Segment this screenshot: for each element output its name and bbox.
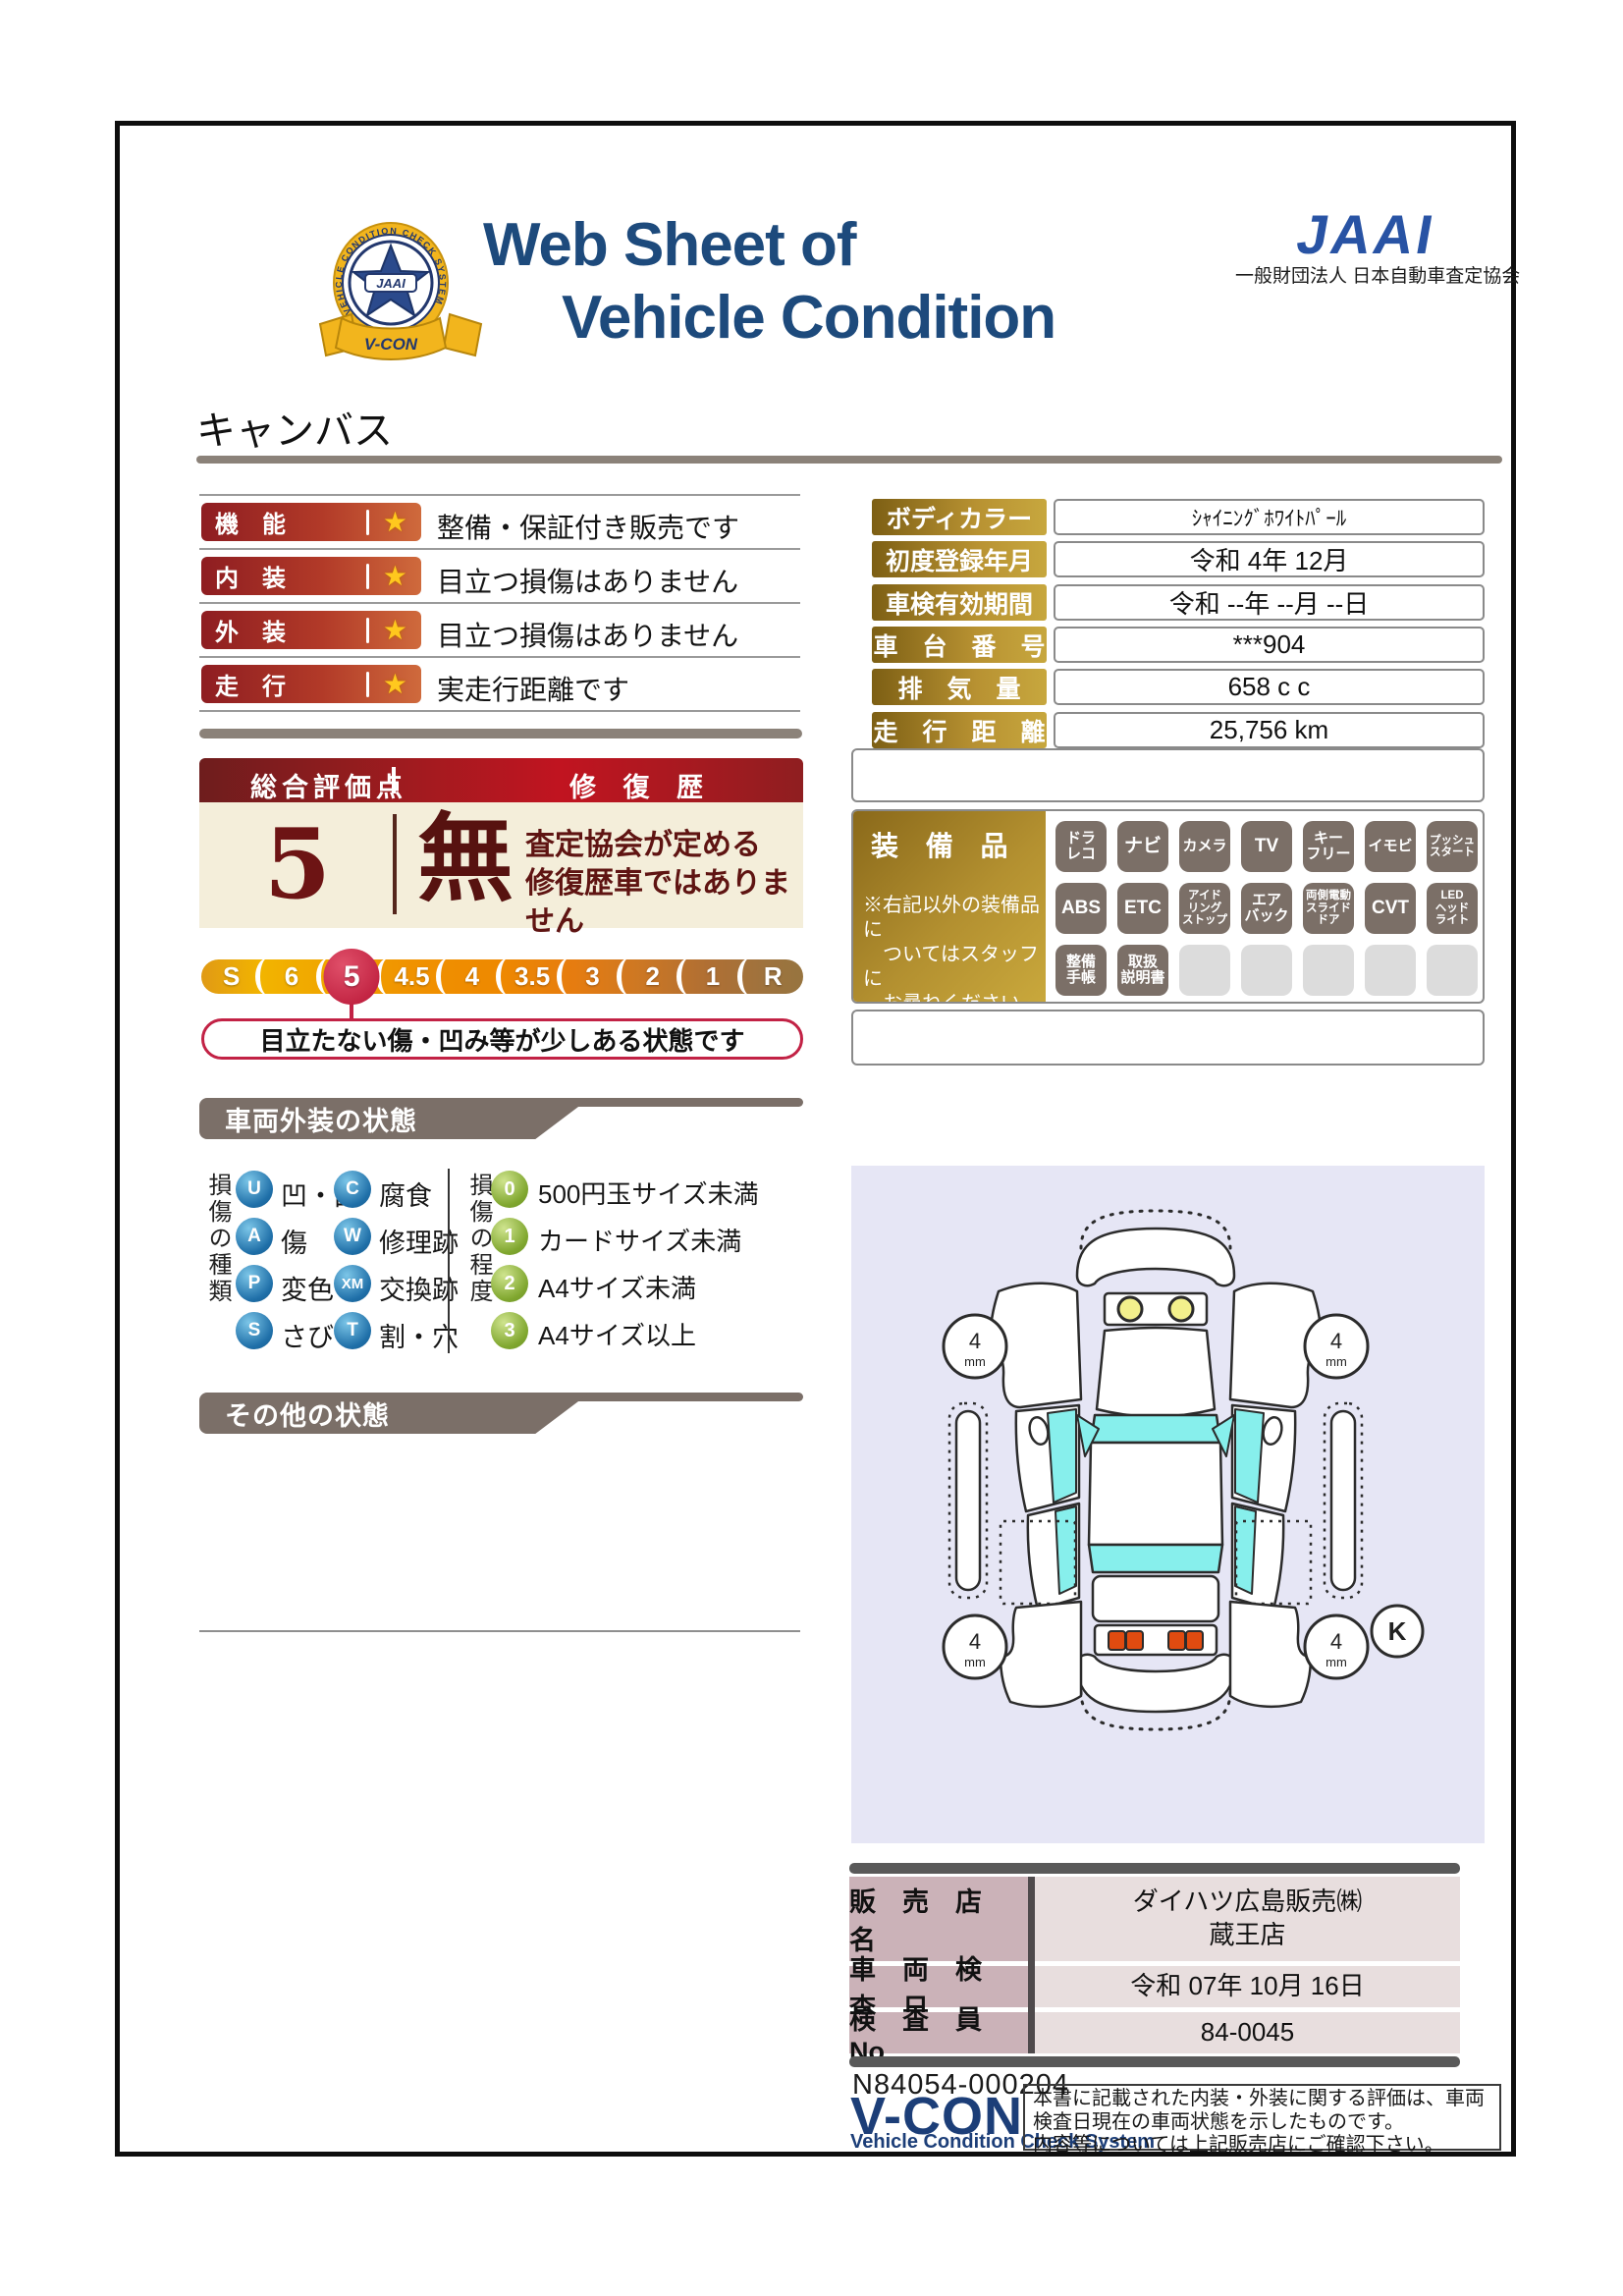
dealer-table-divider <box>1028 1877 1035 2053</box>
legend-divider <box>448 1169 450 1353</box>
level-label: A4サイズ以上 <box>538 1316 696 1352</box>
dealer-table-bottom-bar <box>849 2056 1460 2067</box>
badge-airbag: エア バック <box>1241 883 1292 934</box>
rating-comment: 目立つ損傷はありません <box>437 561 738 600</box>
badge-immobilizer: イモビ <box>1365 821 1416 872</box>
grade-seg-s: S <box>201 959 261 994</box>
other-section-banner: その他の状態 <box>199 1393 590 1434</box>
rating-label: 内 装 <box>215 559 362 593</box>
damage-code-xm: XM <box>334 1265 371 1302</box>
grade-seg-4-5: 4.5 <box>382 959 442 994</box>
dealer-table-top-bar <box>849 1863 1460 1874</box>
level-1: 1 <box>491 1218 528 1255</box>
jaai-org-name: 一般財団法人 日本自動車査定協会 <box>1235 261 1520 288</box>
pill-divider <box>366 618 369 643</box>
badge-empty <box>1179 945 1230 996</box>
rating-pill-function: 機 能 ★ <box>201 503 421 541</box>
star-icon: ★ <box>383 509 407 536</box>
selected-grade-circle: 5 <box>324 949 380 1005</box>
badge-keyfree: キー フリー <box>1303 821 1354 872</box>
rating-pill-exterior: 外 装 外 装 ★ <box>201 611 421 649</box>
rating-comment: 整備・保証付き販売です <box>437 507 739 546</box>
badge-pushstart: プッシュ スタート <box>1427 821 1478 872</box>
damage-label: 腐食 <box>379 1175 432 1213</box>
car-damage-diagram: 4 mm 4 mm 4 mm 4 mm K <box>851 1166 1485 1843</box>
grade-seg-4: 4 <box>442 959 502 994</box>
grade-seg-2: 2 <box>622 959 682 994</box>
rating-label: 外 装 <box>215 613 362 647</box>
badge-idling-stop: アイド リング ストップ <box>1179 883 1230 934</box>
level-label: A4サイズ未満 <box>538 1269 696 1305</box>
tire-depth-unit: mm <box>1325 1354 1347 1369</box>
dealer-name-value: ダイハツ広島販売㈱ 蔵王店 <box>1035 1877 1460 1961</box>
sheet-title-line2: Vehicle Condition <box>562 283 1055 353</box>
badge-etc: ETC <box>1117 883 1168 934</box>
repair-history-title: 修 復 歴 <box>494 766 788 804</box>
detail-value-first-reg: 令和 4年 12月 <box>1054 541 1485 577</box>
overall-score-title: 総合評価点 <box>250 766 407 804</box>
grade-seg-r: R <box>743 959 803 994</box>
inspection-date-value: 令和 07年 10月 16日 <box>1035 1966 1460 2007</box>
body-divider <box>393 814 397 914</box>
detail-label-inspection: 車検有効期間 <box>872 584 1047 621</box>
rating-comment: 目立つ損傷はありません <box>437 615 738 654</box>
repair-history-note: 査定協会が定める 修復歴車ではありません <box>525 826 803 941</box>
equipment-box: 装 備 品 ※右記以外の装備品に ついてはスタッフに お尋ねください。 ドラ レ… <box>851 809 1485 1004</box>
detail-value-displacement: 658 c c <box>1054 669 1485 705</box>
overall-score-value: 5 <box>219 808 376 921</box>
grade-seg-5: 5 <box>322 959 382 994</box>
repair-history-value: 無 <box>417 806 514 912</box>
badge-empty <box>1241 945 1292 996</box>
grade-seg-1: 1 <box>682 959 742 994</box>
equipment-gold-panel: 装 備 品 ※右記以外の装備品に ついてはスタッフに お尋ねください。 <box>853 811 1046 1002</box>
empty-box <box>851 748 1485 802</box>
grade-seg-3-5: 3.5 <box>502 959 562 994</box>
badge-abs: ABS <box>1055 883 1107 934</box>
callout-pointer-line <box>350 1003 353 1019</box>
level-label: 500円玉サイズ未満 <box>538 1175 759 1211</box>
badge-power-slide-door: 両側電動 スライド ドア <box>1303 883 1354 934</box>
tire-depth-unit: mm <box>964 1354 986 1369</box>
star-icon: ★ <box>383 671 407 698</box>
grade-seg-3: 3 <box>563 959 622 994</box>
svg-text:V-CON: V-CON <box>364 335 418 354</box>
divider <box>199 656 800 658</box>
detail-label-displacement: 排 気 量 <box>872 669 1047 705</box>
tire-depth-value: 4 <box>1330 1629 1342 1654</box>
vehicle-condition-sheet: VEHICLE CONDITION CHECK SYSTEM JAAI V-CO… <box>0 0 1623 2296</box>
badge-tv: TV <box>1241 821 1292 872</box>
disclaimer-text: 本書に記載された内装・外装に関する評価は、車両 検査日現在の車両状態を示したもの… <box>1023 2084 1501 2151</box>
pill-divider <box>366 564 369 589</box>
badge-dorareco: ドラ レコ <box>1055 821 1107 872</box>
header-tick <box>392 767 396 793</box>
damage-code-t: T <box>334 1312 371 1349</box>
badge-navi: ナビ <box>1117 821 1168 872</box>
damage-code-p: P <box>236 1265 273 1302</box>
badge-camera: カメラ <box>1179 821 1230 872</box>
inspector-no-value: 84-0045 <box>1035 2012 1460 2053</box>
star-icon: ★ <box>383 617 407 644</box>
detail-value-inspection: 令和 --年 --月 --日 <box>1054 584 1485 621</box>
vehicle-name: キャンバス <box>196 399 393 456</box>
damage-label: さび <box>281 1316 334 1354</box>
overall-score-body: 5 無 査定協会が定める 修復歴車ではありません <box>199 802 803 928</box>
section-divider-bar <box>199 729 802 738</box>
badge-empty <box>1365 945 1416 996</box>
rating-pill-interior: 内 装 ★ <box>201 557 421 595</box>
badge-service-book: 整備 手帳 <box>1055 945 1107 996</box>
level-0: 0 <box>491 1171 528 1208</box>
damage-code-u: U <box>236 1171 273 1208</box>
detail-value-mileage: 25,756 km <box>1054 712 1485 748</box>
exterior-section-banner: 車両外装の状態 <box>199 1098 590 1139</box>
damage-label: 割・穴 <box>379 1316 459 1354</box>
level-label: カードサイズ未満 <box>538 1222 741 1258</box>
damage-code-w: W <box>334 1218 371 1255</box>
divider <box>199 710 800 712</box>
jaai-logo: JAAI <box>1292 202 1440 266</box>
rating-label: 機 能 <box>215 505 362 539</box>
detail-value-bodycolor: ｼｬｲﾆﾝｸﾞﾎﾜｲﾄﾊﾟｰﾙ <box>1054 499 1485 535</box>
sheet-title-line1: Web Sheet of <box>483 210 856 280</box>
equipment-note: ※右記以外の装備品に ついてはスタッフに お尋ねください。 <box>863 894 1046 1004</box>
detail-label-mileage: 走 行 距 離 <box>872 712 1047 748</box>
tire-depth-unit: mm <box>1325 1655 1347 1669</box>
tire-depth-value: 4 <box>969 1329 981 1353</box>
grade-callout: 目立たない傷・凹み等が少しある状態です <box>201 1018 803 1060</box>
tire-depth-value: 4 <box>969 1629 981 1654</box>
empty-box <box>851 1010 1485 1066</box>
grade-scale: S 6 5 4.5 4 3.5 3 2 1 R <box>201 959 803 994</box>
detail-label-chassis-no: 車 台 番 号 <box>872 627 1047 663</box>
badge-led-headlight: LED ヘッド ライト <box>1427 883 1478 934</box>
equipment-badges: ドラ レコ ナビ カメラ TV キー フリー イモビ プッシュ スタート ABS… <box>1055 821 1478 996</box>
damage-label: 変色 <box>281 1269 334 1307</box>
divider <box>199 602 800 604</box>
damage-type-title: 損傷の種類 <box>200 1173 235 1305</box>
grade-seg-6: 6 <box>261 959 321 994</box>
pill-divider <box>366 510 369 535</box>
divider <box>199 548 800 550</box>
rating-comment: 実走行距離です <box>437 669 629 708</box>
damage-label: 傷 <box>281 1222 307 1260</box>
pill-divider <box>366 672 369 697</box>
svg-text:JAAI: JAAI <box>376 276 406 291</box>
vcon-emblem-icon: VEHICLE CONDITION CHECK SYSTEM JAAI V-CO… <box>314 220 487 369</box>
rating-label: 走 行 <box>215 667 362 701</box>
equipment-title: 装 備 品 <box>871 825 1018 864</box>
diagram-key-label: K <box>1388 1616 1407 1646</box>
badge-manual: 取扱 説明書 <box>1117 945 1168 996</box>
damage-label: 交換跡 <box>379 1269 459 1307</box>
level-2: 2 <box>491 1265 528 1302</box>
divider <box>199 1630 800 1632</box>
level-3: 3 <box>491 1312 528 1349</box>
damage-code-s: S <box>236 1312 273 1349</box>
damage-code-c: C <box>334 1171 371 1208</box>
overall-score-header: 総合評価点 修 復 歴 <box>199 758 803 802</box>
detail-value-chassis-no: ***904 <box>1054 627 1485 663</box>
damage-code-a: A <box>236 1218 273 1255</box>
inspector-no-label: 検 査 員 No <box>849 2012 1028 2053</box>
tire-depth-unit: mm <box>964 1655 986 1669</box>
tire-depth-value: 4 <box>1330 1329 1342 1353</box>
damage-label: 修理跡 <box>379 1222 459 1260</box>
title-divider-bar <box>196 456 1502 464</box>
star-icon: ★ <box>383 563 407 590</box>
badge-cvt: CVT <box>1365 883 1416 934</box>
badge-empty <box>1427 945 1478 996</box>
detail-label-bodycolor: ボディカラー <box>872 499 1047 535</box>
badge-empty <box>1303 945 1354 996</box>
detail-label-first-reg: 初度登録年月 <box>872 541 1047 577</box>
divider <box>199 494 800 496</box>
car-diagram-svg: 4 mm 4 mm 4 mm 4 mm K <box>851 1166 1485 1843</box>
rating-pill-mileage: 走 行 ★ <box>201 665 421 703</box>
